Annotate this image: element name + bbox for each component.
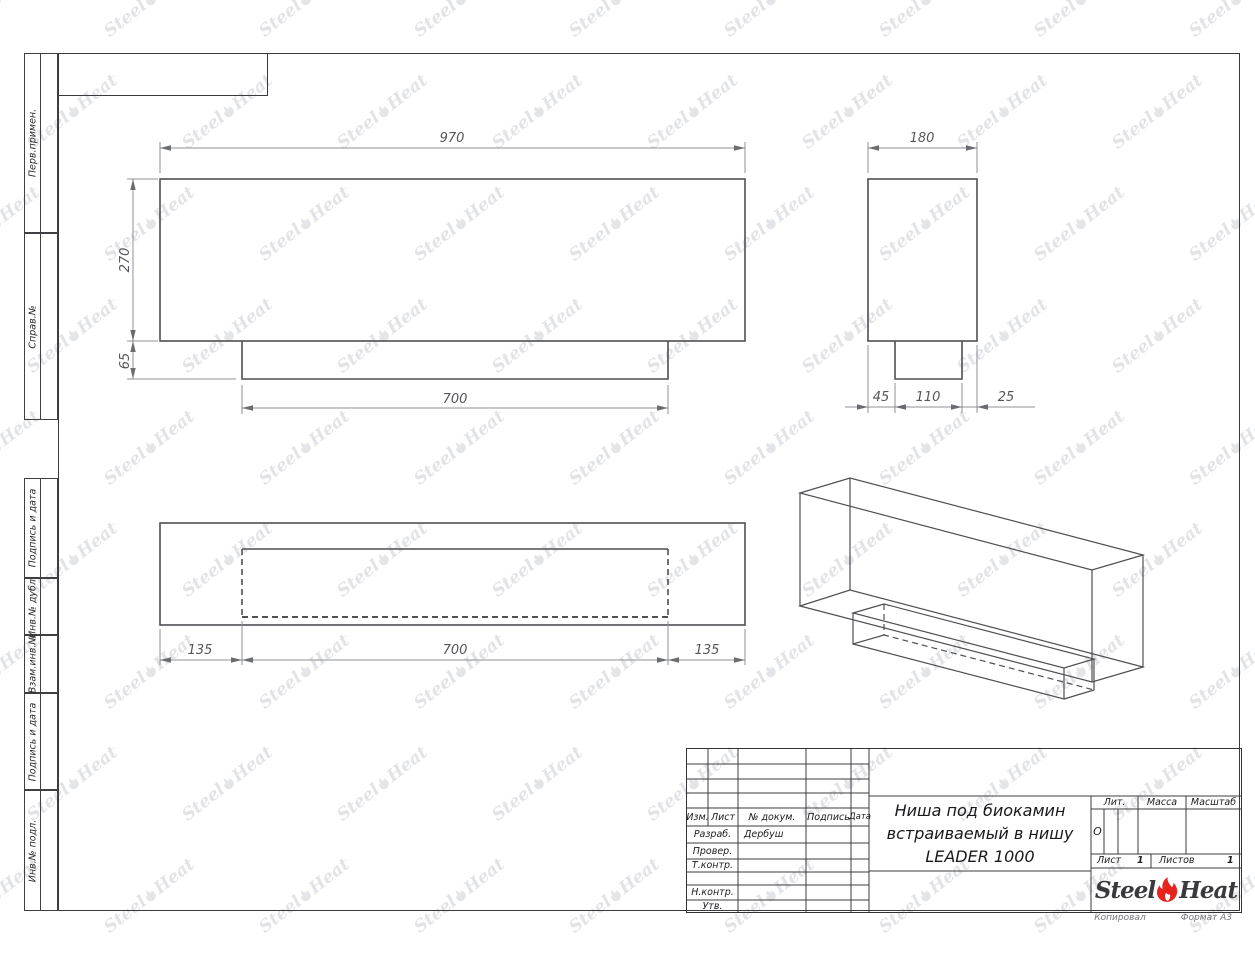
logo-steel-text: Steel [1095,877,1155,904]
sheets-value: 1 [1227,855,1234,866]
lit-value: О [1091,809,1104,854]
sheets-label: Листов [1159,855,1195,866]
drawing-sheet: SteelHeatSteelHeatSteelHeatSteelHeatStee… [0,0,1255,970]
dim-front-step-height: 65 [118,353,133,370]
dim-front-height: 270 [118,248,133,273]
dim-front-step-width: 700 [443,392,468,407]
doc-title-line-1: Ниша под биокамин [869,801,1091,820]
front-view: 970 270 65 700 [118,131,745,414]
dim-side-front-offset: 45 [873,390,890,405]
scale-label: Масштаб [1186,796,1241,809]
format-label: Формат А3 [1152,913,1232,923]
col-date: Дата [851,808,869,826]
row-tcontrol-label: Т.контр. [687,859,738,872]
steelheat-logo: Steel Heat [1091,868,1241,912]
dim-front-width: 970 [440,131,465,146]
sheet-value: 1 [1137,855,1144,866]
row-ncontrol-label: Н.контр. [687,885,738,900]
dim-side-step-depth: 110 [916,390,941,405]
side-view: 180 45 110 25 [845,131,1035,413]
dim-bottom-left-margin: 135 [188,643,213,658]
mass-label: Масса [1138,796,1186,809]
row-developed-label: Разраб. [687,826,738,843]
logo-heat-text: Heat [1179,877,1237,904]
col-docnum: № докум. [738,808,806,826]
doc-title-line-2: встраиваемый в нишу [869,824,1091,843]
lit-label: Лит. [1091,796,1138,809]
doc-title-line-3: LEADER 1000 [869,847,1091,866]
row-developed-name: Дербуш [744,829,783,840]
isometric-view [800,478,1143,699]
dim-bottom-opening-width: 700 [443,643,468,658]
bottom-view: 135 700 135 [160,523,745,665]
sheet-label: Лист [1097,855,1121,866]
copied-label: Копировал [1080,913,1160,923]
row-approved-label: Утв. [687,900,738,912]
flame-icon [1156,876,1178,904]
col-izm: Изм. [687,808,708,826]
col-sign: Подпись [806,808,851,826]
dim-bottom-right-margin: 135 [695,643,720,658]
dim-side-back-offset: 25 [998,390,1015,405]
row-checked-label: Провер. [687,843,738,859]
title-block: Изм. Лист № докум. Подпись Дата Разраб. … [686,748,1242,913]
dim-side-depth: 180 [910,131,935,146]
col-list: Лист [708,808,738,826]
